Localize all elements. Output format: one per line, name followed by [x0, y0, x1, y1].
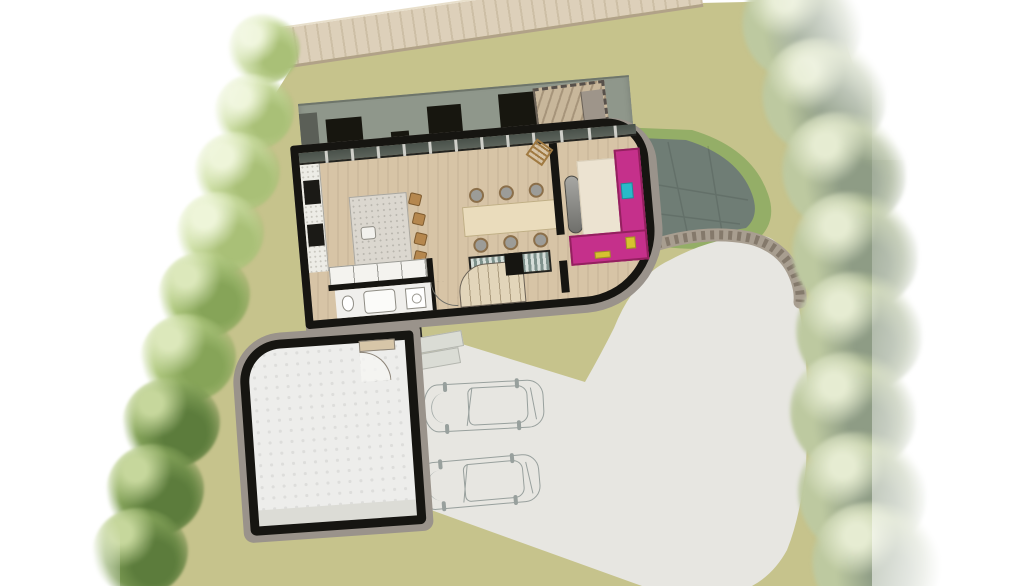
car-outline: [423, 379, 545, 433]
kitchen-appliance: [303, 180, 321, 205]
bar-stool: [413, 232, 427, 246]
bathtub: [363, 288, 397, 314]
car-wheel: [515, 378, 520, 388]
mullion: [402, 144, 406, 156]
mullion: [350, 148, 354, 160]
bar-stool: [408, 192, 422, 206]
dining-chair: [473, 237, 489, 253]
garage-outer-wall: [230, 323, 434, 544]
mullion: [454, 139, 458, 151]
house-outer-wall: [290, 114, 669, 337]
mullion: [480, 137, 484, 149]
tree: [228, 14, 300, 84]
car-hood-line: [430, 392, 458, 423]
garage-side-door: [359, 339, 396, 352]
mullion: [613, 125, 617, 137]
mullion: [428, 142, 432, 154]
car-wheel: [445, 424, 450, 434]
partition-wall: [559, 260, 570, 293]
dining-chair: [528, 182, 544, 198]
cushion: [621, 182, 634, 199]
dining-chair: [533, 232, 549, 248]
mullion: [376, 146, 380, 158]
car-wheel: [517, 420, 522, 430]
dining-chair: [468, 187, 484, 203]
corner-sofa: [569, 229, 649, 266]
car-wheel: [513, 495, 518, 505]
house-first-floor: [290, 115, 661, 329]
kitchen-counter: [300, 163, 329, 272]
shower-tray: [405, 287, 427, 310]
bar-stool: [412, 212, 426, 226]
dining-table: [462, 199, 564, 238]
car-wheel: [442, 501, 447, 511]
dining-chair: [498, 185, 514, 201]
mullion: [325, 151, 329, 163]
car-wheel: [443, 382, 448, 392]
garage: [237, 330, 426, 536]
cushion: [625, 236, 636, 249]
stair-wall: [504, 252, 524, 275]
site-plan-rendering: [0, 0, 1024, 586]
cushion: [594, 250, 611, 258]
car-wheel: [510, 453, 515, 463]
mullion: [560, 130, 564, 142]
mullion: [506, 135, 510, 147]
sink: [360, 226, 376, 240]
kitchen-appliance: [307, 223, 325, 246]
tree: [92, 508, 188, 586]
dining-chair: [503, 235, 519, 251]
garage-door-swing-arc: [359, 350, 391, 382]
car-wheel: [438, 459, 443, 469]
mullion: [588, 128, 592, 140]
